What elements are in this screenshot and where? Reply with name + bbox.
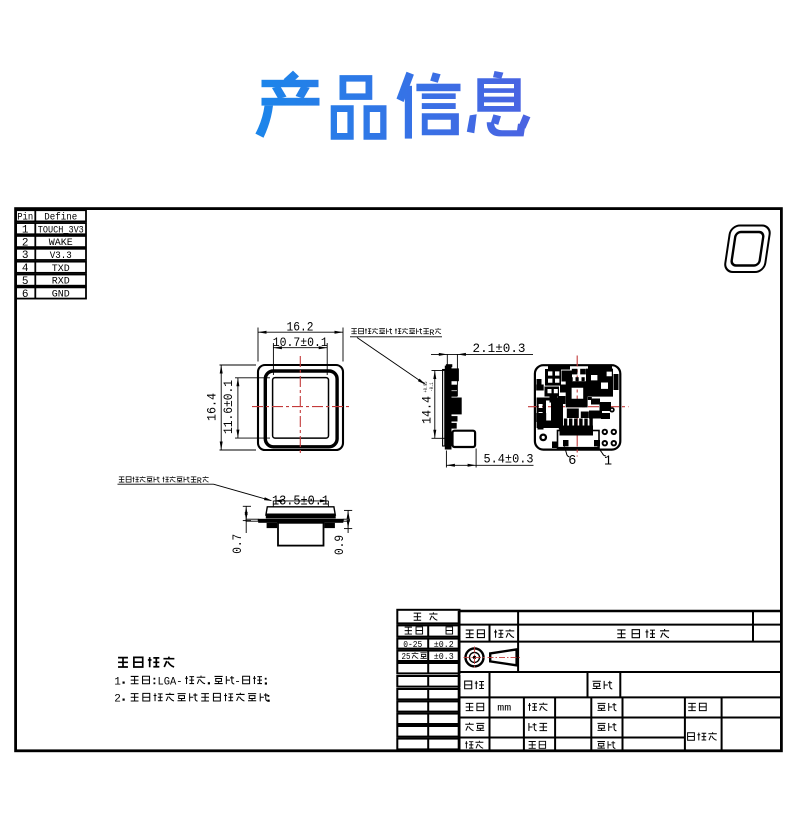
svg-text:1: 1 bbox=[114, 677, 121, 689]
svg-text:11.6±0.1: 11.6±0.1 bbox=[221, 380, 236, 434]
svg-text:2.1±0.3: 2.1±0.3 bbox=[473, 341, 526, 356]
svg-text:14.4: 14.4 bbox=[421, 396, 435, 424]
svg-text:25: 25 bbox=[402, 652, 411, 662]
svg-text:TOUCH_3V3: TOUCH_3V3 bbox=[38, 225, 84, 236]
svg-text:1: 1 bbox=[22, 224, 29, 236]
svg-text:2: 2 bbox=[114, 694, 121, 706]
svg-text:6: 6 bbox=[568, 454, 576, 469]
svg-text:WAKE: WAKE bbox=[49, 238, 73, 249]
svg-text:Define: Define bbox=[44, 211, 77, 223]
svg-text:0-25: 0-25 bbox=[403, 640, 422, 650]
svg-text:1: 1 bbox=[604, 455, 612, 470]
svg-text:LGA-: LGA- bbox=[158, 676, 183, 688]
svg-text:R: R bbox=[429, 328, 434, 338]
svg-text:5.4±0.3: 5.4±0.3 bbox=[484, 452, 534, 467]
svg-text:Pin: Pin bbox=[17, 211, 33, 223]
svg-text:0.9: 0.9 bbox=[332, 535, 347, 555]
svg-text:V3.3: V3.3 bbox=[50, 251, 72, 262]
svg-text:16.4: 16.4 bbox=[205, 393, 220, 421]
svg-text:-: - bbox=[234, 676, 241, 688]
svg-text:±0.3: ±0.3 bbox=[434, 652, 454, 662]
svg-text:4: 4 bbox=[22, 263, 29, 275]
svg-text:3: 3 bbox=[22, 250, 29, 262]
svg-text:13.5±0.1: 13.5±0.1 bbox=[272, 494, 329, 509]
svg-text:TXD: TXD bbox=[52, 264, 70, 275]
svg-text:6: 6 bbox=[22, 289, 29, 301]
svg-text:mm: mm bbox=[497, 704, 511, 715]
svg-text:RXD: RXD bbox=[52, 277, 70, 288]
svg-text:±0.2: ±0.2 bbox=[434, 640, 454, 650]
svg-text:GND: GND bbox=[52, 290, 70, 301]
svg-text:10.7±0.1: 10.7±0.1 bbox=[273, 335, 328, 350]
svg-text:2: 2 bbox=[22, 237, 29, 249]
svg-text:16.2: 16.2 bbox=[287, 319, 314, 334]
svg-text:5: 5 bbox=[22, 276, 29, 288]
svg-text:-0.1: -0.1 bbox=[428, 382, 435, 391]
svg-text:0.7: 0.7 bbox=[230, 534, 245, 554]
